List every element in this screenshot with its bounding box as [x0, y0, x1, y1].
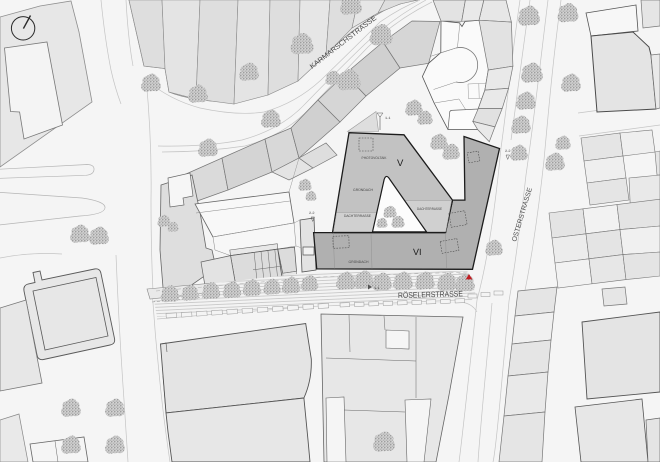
svg-text:PHOTOVOLTAIK: PHOTOVOLTAIK — [362, 156, 388, 160]
svg-text:VI: VI — [413, 247, 422, 257]
svg-text:RÖSELERSTRASSE: RÖSELERSTRASSE — [398, 289, 463, 300]
svg-text:GRÜNDACH: GRÜNDACH — [349, 260, 370, 264]
svg-text:1-1: 1-1 — [374, 286, 380, 290]
svg-text:DACHTERRASSE: DACHTERRASSE — [344, 214, 372, 218]
svg-text:V: V — [397, 158, 404, 169]
svg-text:DACHTERRASSE: DACHTERRASSE — [417, 207, 443, 211]
svg-text:2-2: 2-2 — [309, 211, 315, 215]
svg-text:1-1: 1-1 — [385, 116, 391, 120]
svg-text:GRÜNDACH: GRÜNDACH — [353, 188, 374, 192]
svg-text:2-2: 2-2 — [505, 149, 511, 153]
